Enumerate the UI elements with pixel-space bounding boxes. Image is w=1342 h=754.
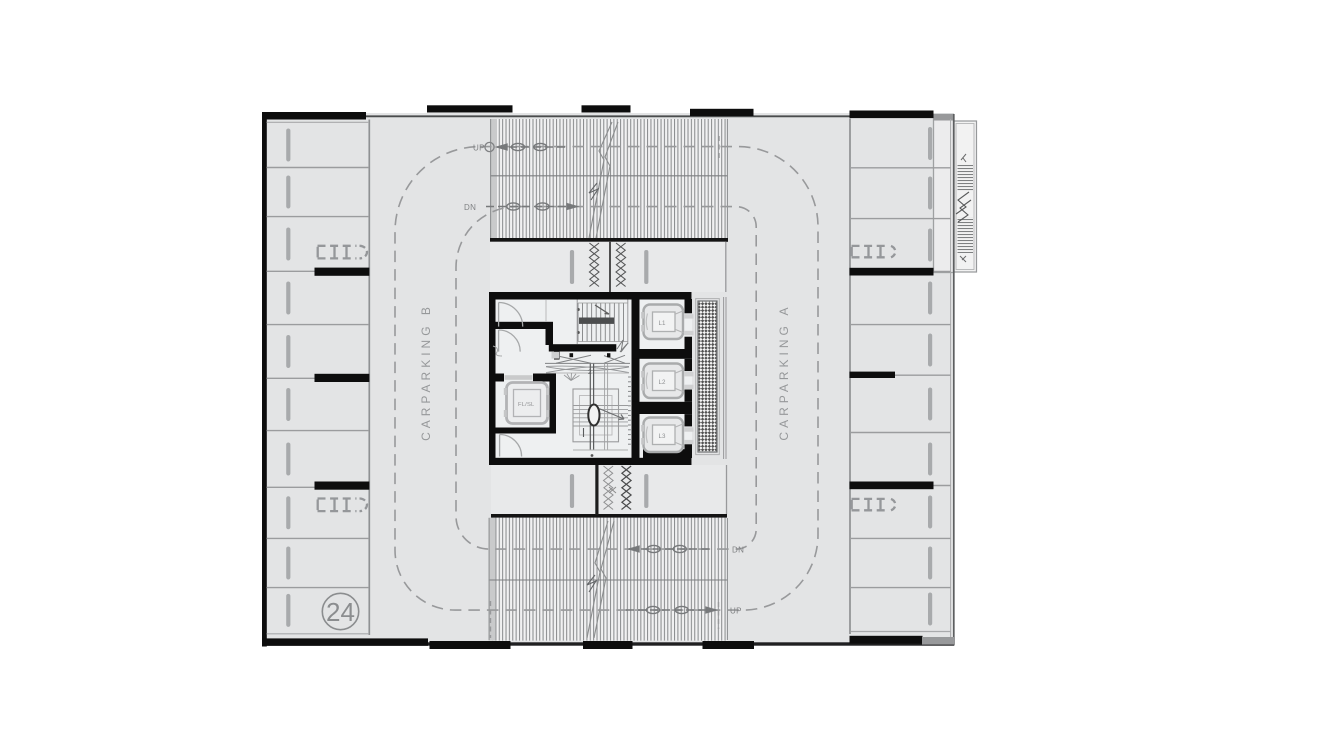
svg-text:DN: DN: [732, 546, 744, 555]
svg-text:UP: UP: [730, 607, 742, 616]
svg-text:CARPARKING A: CARPARKING A: [777, 303, 791, 440]
svg-text:L2: L2: [659, 379, 666, 386]
svg-text:FL/SL: FL/SL: [518, 402, 535, 408]
svg-text:24: 24: [326, 597, 355, 627]
svg-text:DN: DN: [464, 203, 476, 212]
svg-text:L3: L3: [659, 433, 666, 440]
svg-text:UP: UP: [473, 144, 485, 153]
svg-text:CARPARKING B: CARPARKING B: [419, 303, 433, 441]
svg-text:L1: L1: [659, 320, 666, 327]
